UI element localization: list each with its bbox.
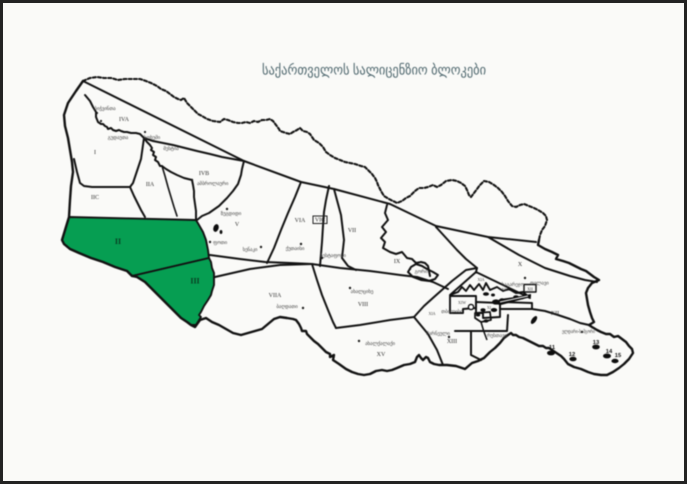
svg-text:მარნეული: მარნეული xyxy=(426,330,450,337)
svg-text:ზესტაფონი: ზესტაფონი xyxy=(320,252,346,259)
svg-text:VIII: VIII xyxy=(358,302,368,308)
svg-text:X: X xyxy=(518,262,523,268)
svg-text:XI: XI xyxy=(487,305,492,310)
svg-text:XIII: XIII xyxy=(447,339,457,345)
svg-text:IVA: IVA xyxy=(119,117,130,123)
svg-text:მესტია: მესტია xyxy=(163,145,179,152)
svg-text:თელავი: თელავი xyxy=(530,282,549,287)
svg-text:გუდაუთა: გუდაუთა xyxy=(108,136,129,141)
svg-text:14: 14 xyxy=(606,349,613,355)
svg-text:ბიჭვინთა: ბიჭვინთა xyxy=(94,105,116,112)
svg-text:ბაღდათი: ბაღდათი xyxy=(276,303,298,310)
svg-text:ელდარი-სამგორი: ელდარი-სამგორი xyxy=(562,328,595,335)
svg-text:ქუთაისი: ქუთაისი xyxy=(286,245,305,252)
svg-text:საგარეჯო: საგარეჯო xyxy=(502,281,525,288)
svg-text:საქართველოს სალიცენზიო ბლოკები: საქართველოს სალიცენზიო ბლოკები xyxy=(262,62,486,79)
svg-text:XIW: XIW xyxy=(458,300,466,305)
svg-text:IIC: IIC xyxy=(91,195,99,201)
svg-text:11: 11 xyxy=(549,345,556,351)
svg-text:III: III xyxy=(190,277,199,286)
svg-text:I: I xyxy=(94,150,96,156)
svg-text:XIA: XIA xyxy=(428,311,435,316)
svg-text:VII: VII xyxy=(348,228,356,234)
svg-text:ამბროლაური: ამბროლაური xyxy=(197,180,229,187)
svg-text:ახალქალაქი: ახალქალაქი xyxy=(365,340,395,347)
svg-text:12: 12 xyxy=(569,352,575,358)
svg-text:VIA: VIA xyxy=(295,218,306,224)
svg-text:XII: XII xyxy=(551,311,559,317)
svg-text:VIC: VIC xyxy=(315,218,325,224)
svg-text:გორი: გორი xyxy=(415,268,428,275)
svg-text:IX: IX xyxy=(394,259,401,265)
svg-text:XV: XV xyxy=(377,352,386,358)
svg-text:13: 13 xyxy=(593,340,600,346)
svg-text:VIIA: VIIA xyxy=(269,293,282,299)
svg-text:II: II xyxy=(115,237,121,246)
svg-text:V: V xyxy=(235,222,240,228)
svg-text:ფოთი: ფოთი xyxy=(213,241,228,246)
svg-text:თბილისი: თბილისი xyxy=(441,308,463,315)
svg-text:ახალციხე: ახალციხე xyxy=(351,288,374,295)
svg-text:რუსთავი: რუსთავი xyxy=(487,332,508,339)
svg-text:15: 15 xyxy=(615,353,622,359)
svg-text:სოხუმი: სოხუმი xyxy=(144,134,161,141)
svg-text:XII: XII xyxy=(527,287,533,292)
svg-text:XIA: XIA xyxy=(477,277,484,282)
svg-text:IVB: IVB xyxy=(199,171,209,177)
svg-text:ზუგდიდი: ზუგდიდი xyxy=(221,210,242,217)
svg-text:IIA: IIA xyxy=(146,182,155,188)
svg-text:სენაკი: სენაკი xyxy=(243,246,258,253)
